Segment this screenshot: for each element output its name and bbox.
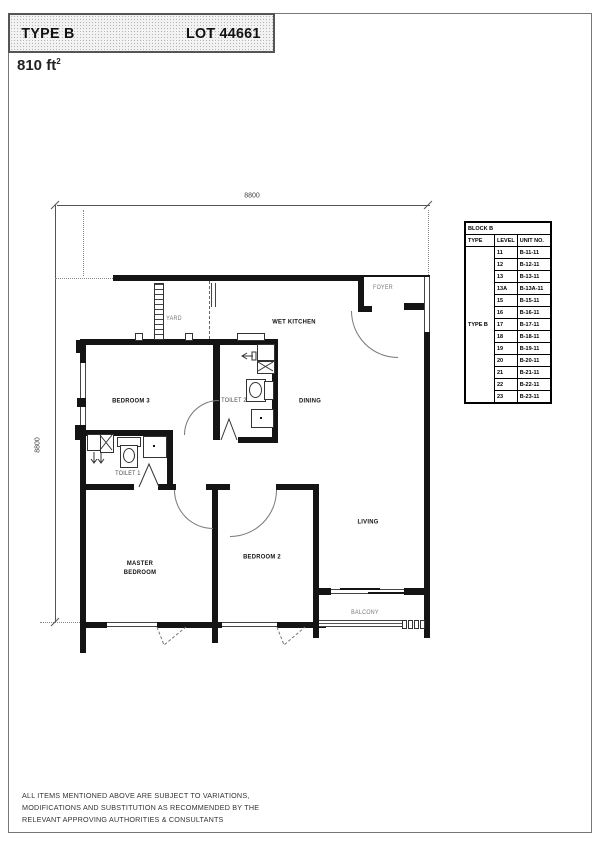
- plan-annotations: [0, 0, 600, 849]
- casement-swing: [277, 627, 305, 645]
- level-cell: 12: [495, 259, 518, 271]
- level-cell: 16: [495, 307, 518, 319]
- room-label-toilet1: TOILET 1: [115, 471, 140, 477]
- level-cell: 22: [495, 379, 518, 391]
- room-label-wet-kitchen: WET KITCHEN: [272, 319, 316, 326]
- column-header-type: TYPE: [465, 235, 495, 247]
- unit-table-body: TYPE B11B-11-1112B-12-1113B-13-1113AB-13…: [465, 247, 551, 404]
- unit-no-cell: B-16-11: [517, 307, 551, 319]
- unit-no-cell: B-20-11: [517, 355, 551, 367]
- unit-no-cell: B-21-11: [517, 367, 551, 379]
- door-swing-toilet2: [221, 419, 237, 440]
- disclaimer-line: MODIFICATIONS AND SUBSTITUTION AS RECOMM…: [22, 802, 259, 814]
- floor-plan-page: TYPE B LOT 44661 810 ft2 8800 8800: [0, 0, 600, 849]
- casement-swing: [157, 627, 186, 645]
- shower-arrow-icon: [98, 452, 104, 463]
- level-cell: 20: [495, 355, 518, 367]
- faucet-arrow-icon: [242, 353, 253, 359]
- room-label-yard: YARD: [166, 316, 182, 322]
- level-cell: 17: [495, 319, 518, 331]
- level-cell: 11: [495, 247, 518, 259]
- level-cell: 19: [495, 343, 518, 355]
- unit-no-cell: B-12-11: [517, 259, 551, 271]
- disclaimer-line: ALL ITEMS MENTIONED ABOVE ARE SUBJECT TO…: [22, 790, 259, 802]
- level-cell: 21: [495, 367, 518, 379]
- unit-no-cell: B-22-11: [517, 379, 551, 391]
- shower-arrow-icon: [91, 452, 97, 463]
- room-label-balcony: BALCONY: [351, 610, 379, 616]
- level-cell: 13A: [495, 283, 518, 295]
- room-label-foyer: FOYER: [373, 285, 393, 291]
- room-label-dining: DINING: [299, 398, 321, 405]
- room-label-bedroom3: BEDROOM 3: [112, 398, 150, 405]
- room-label-living: LIVING: [357, 519, 378, 526]
- level-cell: 13: [495, 271, 518, 283]
- dimension-tick: [51, 201, 432, 626]
- disclaimer-line: RELEVANT APPROVING AUTHORITIES & CONSULT…: [22, 814, 259, 826]
- level-cell: 23: [495, 391, 518, 404]
- unit-no-cell: B-18-11: [517, 331, 551, 343]
- column-header-level: LEVEL: [495, 235, 518, 247]
- unit-table: BLOCK B TYPE LEVEL UNIT NO. TYPE B11B-11…: [464, 221, 552, 404]
- door-swing-toilet1: [139, 464, 159, 487]
- column-header-unit-no: UNIT NO.: [517, 235, 551, 247]
- room-label-bedroom2: BEDROOM 2: [243, 554, 281, 561]
- unit-table-title-row: BLOCK B: [465, 222, 551, 235]
- unit-no-cell: B-11-11: [517, 247, 551, 259]
- room-label-toilet2: TOILET 2: [221, 398, 246, 404]
- x-mark: [100, 435, 112, 450]
- unit-no-cell: B-17-11: [517, 319, 551, 331]
- unit-table-header-row: TYPE LEVEL UNIT NO.: [465, 235, 551, 247]
- disclaimer-text: ALL ITEMS MENTIONED ABOVE ARE SUBJECT TO…: [22, 790, 259, 826]
- level-cell: 15: [495, 295, 518, 307]
- level-cell: 18: [495, 331, 518, 343]
- room-label-master-bedroom: MASTER BEDROOM: [118, 559, 161, 577]
- unit-table-title: BLOCK B: [465, 222, 551, 235]
- unit-no-cell: B-13A-11: [517, 283, 551, 295]
- unit-no-cell: B-19-11: [517, 343, 551, 355]
- unit-table-row: TYPE B11B-11-11: [465, 247, 551, 259]
- unit-type-cell: TYPE B: [465, 247, 495, 404]
- unit-no-cell: B-13-11: [517, 271, 551, 283]
- unit-no-cell: B-15-11: [517, 295, 551, 307]
- unit-no-cell: B-23-11: [517, 391, 551, 404]
- x-mark: [258, 362, 273, 371]
